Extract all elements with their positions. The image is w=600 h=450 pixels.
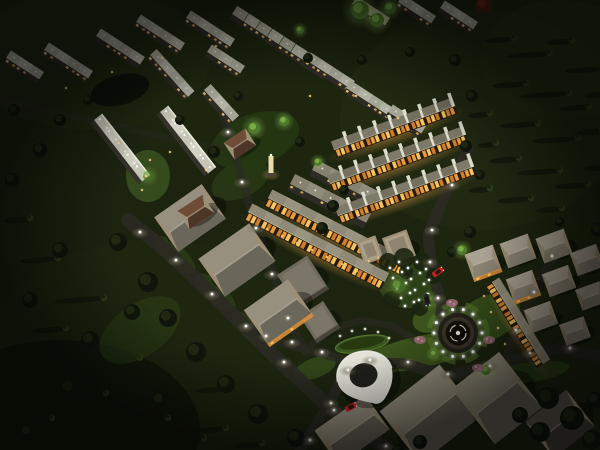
streetlight <box>429 294 447 305</box>
tree <box>186 342 206 362</box>
tree <box>537 387 559 409</box>
plaza-light <box>413 301 415 303</box>
streetlight <box>247 224 265 235</box>
streetlight <box>561 344 579 355</box>
streetlight <box>313 348 331 359</box>
courtyard-light <box>65 87 67 89</box>
plaza-light <box>419 272 421 274</box>
tree <box>124 304 140 320</box>
streetlight <box>263 270 281 281</box>
tree <box>233 91 243 101</box>
courtyard-light <box>111 71 113 73</box>
fountain-light <box>462 355 465 358</box>
flower-bed <box>446 299 458 307</box>
tree <box>33 143 47 157</box>
courtyard-light <box>490 311 492 313</box>
tree <box>327 200 339 212</box>
plaza-light <box>425 268 427 270</box>
tree <box>248 404 268 424</box>
tree <box>138 272 158 292</box>
streetlight <box>443 181 461 192</box>
plaza-light <box>404 305 406 307</box>
tree <box>52 242 68 258</box>
plaza-foliage <box>394 248 414 268</box>
courtyard-light <box>311 249 313 251</box>
tree <box>22 292 38 308</box>
streetlight <box>203 290 221 301</box>
courtyard-light <box>504 343 506 345</box>
plaza-light <box>428 279 430 281</box>
tree <box>464 226 476 238</box>
streetlight <box>322 399 340 410</box>
plaza-light <box>389 267 391 269</box>
tree <box>8 104 20 116</box>
tree <box>413 435 427 449</box>
island-light <box>339 335 341 337</box>
lit-tree <box>292 22 309 39</box>
courtyard-light <box>371 277 373 279</box>
fountain-light <box>435 321 438 324</box>
courtyard-light <box>341 263 343 265</box>
streetlight <box>525 288 543 299</box>
streetlight <box>131 228 149 239</box>
lit-tree <box>274 111 295 132</box>
tree <box>54 114 66 126</box>
courtyard-light <box>355 95 357 97</box>
fountain-light <box>433 332 436 335</box>
courtyard-light <box>141 189 143 191</box>
fountain-light <box>471 313 474 316</box>
streetlight <box>257 332 275 343</box>
island-light <box>388 337 390 339</box>
tree <box>159 309 177 327</box>
tree <box>295 137 305 147</box>
courtyard-light <box>281 235 283 237</box>
courtyard-light <box>483 295 485 297</box>
streetlight <box>439 370 457 381</box>
tree <box>555 217 565 227</box>
fountain-light <box>435 342 438 345</box>
fountain-light <box>471 350 474 353</box>
courtyard-light <box>149 159 151 161</box>
courtyard-light <box>145 175 147 177</box>
streetlight <box>423 226 441 237</box>
township-aerial-night-render <box>0 0 600 450</box>
streetlight <box>543 252 561 263</box>
tree <box>475 170 485 180</box>
courtyard-light <box>497 327 499 329</box>
tree <box>109 233 127 251</box>
courtyard-light <box>161 57 163 59</box>
courtyard-light <box>251 221 253 223</box>
lit-tree <box>241 115 266 140</box>
tree <box>20 424 36 440</box>
island-light <box>377 331 379 333</box>
tree <box>512 407 528 423</box>
courtyard-light <box>266 228 268 230</box>
fountain-jet-light <box>456 331 460 335</box>
fountain-light <box>478 342 481 345</box>
fountain-light <box>478 321 481 324</box>
island-light <box>351 330 353 332</box>
plaza-light <box>407 267 409 269</box>
streetlight <box>339 366 357 377</box>
tree <box>530 422 550 442</box>
plaza-light <box>398 261 400 263</box>
flower-bed <box>414 336 426 344</box>
tree <box>449 54 461 66</box>
fountain-light <box>451 308 454 311</box>
flower-bed <box>483 336 495 344</box>
lit-tree <box>452 240 473 261</box>
streetlight <box>301 436 319 447</box>
plaza-light <box>416 261 418 263</box>
streetlight <box>279 314 297 325</box>
fountain-light <box>481 332 484 335</box>
plaza-light <box>423 283 425 285</box>
streetlight <box>521 349 539 360</box>
streetlight <box>233 178 251 189</box>
courtyard-light <box>169 151 171 153</box>
streetlight <box>275 358 293 369</box>
tree <box>5 173 19 187</box>
streetlight <box>219 128 237 139</box>
tree <box>357 55 367 65</box>
tree <box>466 90 478 102</box>
flower-bed <box>472 364 484 372</box>
courtyard-light <box>205 169 207 171</box>
courtyard-light <box>296 242 298 244</box>
courtyard-light <box>309 95 311 97</box>
lit-tree <box>383 271 412 300</box>
courtyard-light <box>269 39 271 41</box>
tree <box>152 392 168 408</box>
courtyard-light <box>215 45 217 47</box>
streetlight <box>361 356 379 367</box>
tree <box>83 95 93 105</box>
tree <box>405 47 415 57</box>
tree <box>81 331 99 349</box>
streetlight <box>237 322 255 333</box>
tree <box>175 115 185 125</box>
tree <box>303 53 313 63</box>
tree <box>316 222 328 234</box>
plaza-light <box>414 289 416 291</box>
lit-tree <box>310 154 327 171</box>
fountain-light <box>462 308 465 311</box>
tree <box>217 375 235 393</box>
fountain-light <box>451 355 454 358</box>
courtyard-light <box>356 270 358 272</box>
render-canvas <box>0 0 600 450</box>
streetlight <box>283 338 301 349</box>
courtyard-light <box>326 256 328 258</box>
streetlight <box>421 258 439 269</box>
tree <box>61 379 79 397</box>
tree <box>287 429 305 447</box>
courtyard-light <box>117 141 119 143</box>
tree <box>560 406 584 430</box>
tree <box>208 146 220 158</box>
courtyard-light <box>397 117 399 119</box>
tree <box>460 140 472 152</box>
lit-tree <box>426 346 443 363</box>
streetlight <box>507 326 525 337</box>
streetlight <box>167 256 185 267</box>
island-light <box>364 328 366 330</box>
fountain-light <box>442 313 445 316</box>
tree <box>339 185 349 195</box>
streetlight <box>399 358 417 369</box>
